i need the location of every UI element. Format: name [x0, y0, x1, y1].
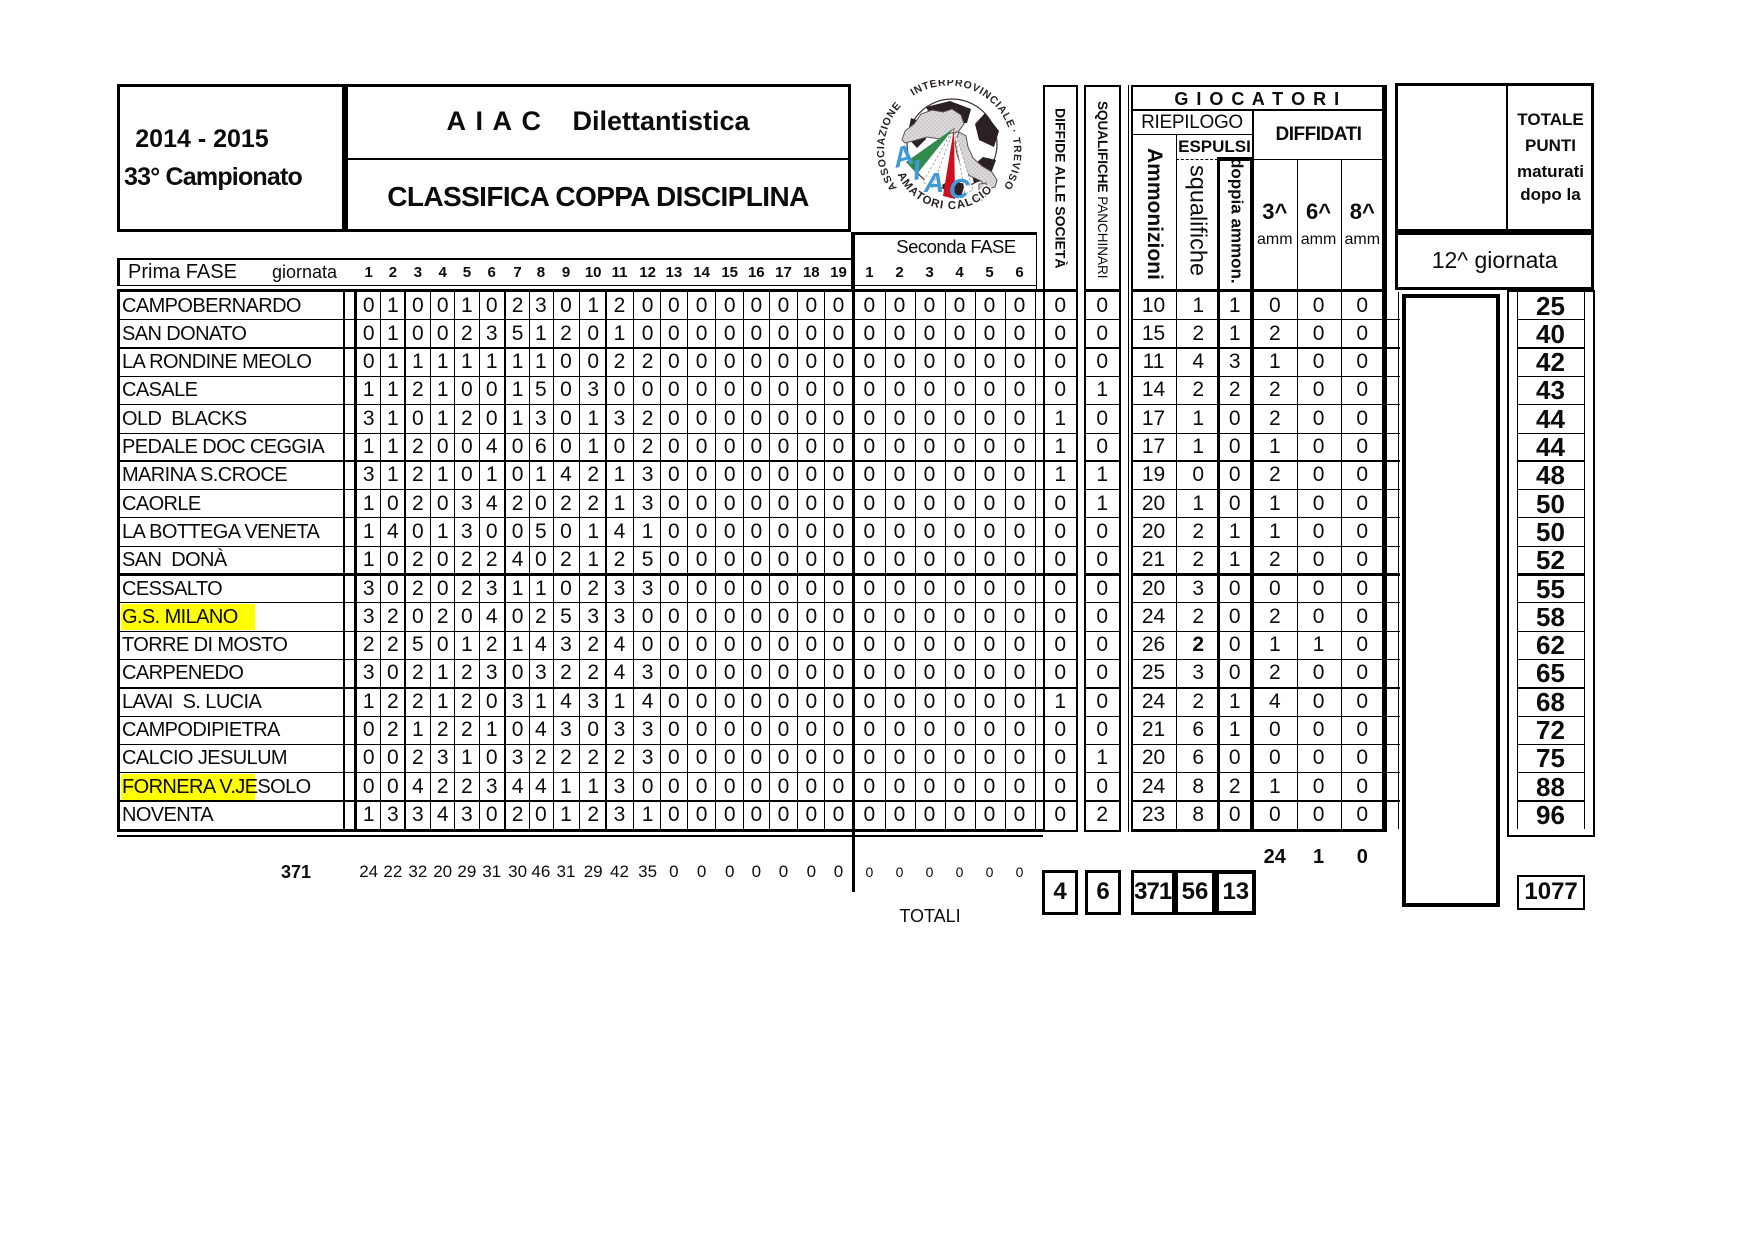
svg-text:· TREVISO: · TREVISO — [1001, 128, 1024, 193]
svg-text:A: A — [923, 167, 944, 198]
